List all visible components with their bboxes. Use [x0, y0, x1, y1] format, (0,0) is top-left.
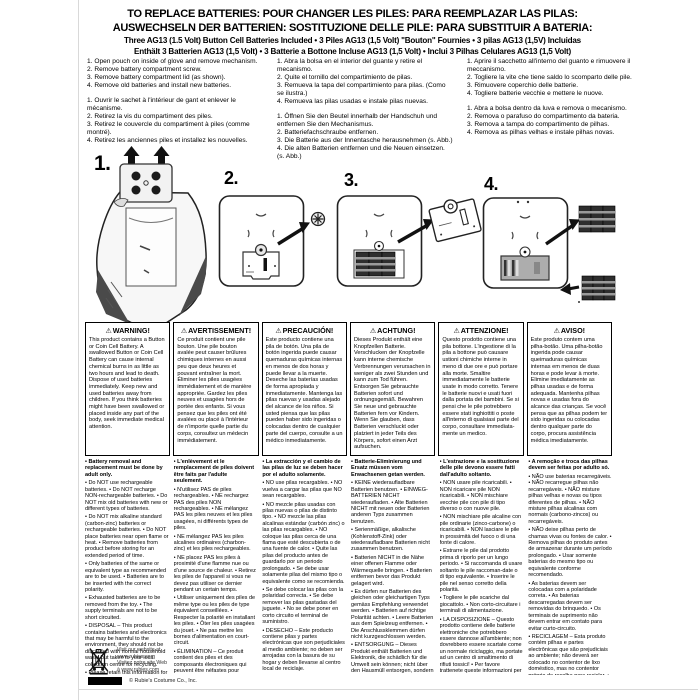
subtitle-line-1: Three AG13 (1.5 Volt) Button Cell Batter… [85, 36, 620, 47]
warning-title-text: ATTENZIONE! [461, 326, 509, 335]
warning-title: ⚠ATTENZIONE! [442, 326, 519, 335]
step-line: 1. Open pouch on inside of glove and rem… [87, 58, 263, 66]
warning-boxes: ⚠WARNING! This product contains a Button… [85, 322, 612, 456]
notes-french: • L'enlèvement et le remplacement de pil… [174, 459, 258, 675]
note-paragraph: • ÉLIMINATION – Ce produit contient des … [174, 649, 258, 675]
warning-triangle-icon: ⚠ [181, 328, 187, 335]
step-line: 4. Togliere batterie vecchie e mettere l… [467, 90, 643, 98]
note-paragraph: • Togliere le pile scariche dal giocatto… [440, 595, 524, 614]
figure-1-glove-illustration [84, 146, 219, 330]
warning-text: Dieses Produkt enthält eine Knopfzellen … [354, 337, 431, 451]
steps-spanish: 1. Abra la bolsa en el interior del guan… [277, 58, 453, 106]
note-paragraph: • NE mélangez PAS les piles alcalines or… [174, 534, 258, 553]
step-line: 4. Retirez les anciennes piles et instal… [87, 137, 263, 145]
steps-english: 1. Open pouch on inside of glove and rem… [87, 58, 263, 90]
title-line-2: AUSWECHSELN DER BATTERIEN: SOSTITUZIONE … [85, 22, 620, 36]
steps-column-2: 1. Abra la bolsa en el interior del guan… [277, 58, 453, 168]
figure-2-remove-screw-illustration [218, 192, 330, 294]
note-paragraph: • Es dürfen nur Batterien des gleichen o… [351, 589, 435, 640]
warning-triangle-icon: ⚠ [554, 328, 560, 335]
notes-english: • Battery removal and replacement must b… [85, 459, 169, 675]
note-paragraph: • Estrarre le pile dal prodotto prima di… [440, 548, 524, 593]
warning-title: ⚠AVISO! [531, 326, 608, 335]
note-paragraph: • KEINE wiederaufladbare Batterien benut… [351, 480, 435, 525]
step-line: 3. Remueva la tapa del compartimiento pa… [277, 82, 453, 98]
warning-text: Ce produit contient une pile bouton. Une… [177, 337, 254, 444]
warning-title-text: AVISO! [561, 326, 585, 335]
figure-3-remove-lid-illustration [336, 192, 482, 294]
step-line: 3. Rimuovere coperchio delle batterie. [467, 82, 643, 90]
step-line: 2. Quite el tornillo del compartimiento … [277, 74, 453, 82]
website-line: Visit our website at [117, 647, 167, 654]
step-line: 3. Retirez le couvercle du compartiment … [87, 121, 263, 137]
steps-column-3: 1. Aprire il sacchetto all'interno del g… [467, 58, 643, 168]
website-note: Visit our website atwww.rubies.comVisite… [117, 647, 167, 673]
warning-title-text: AVERTISSEMENT! [188, 326, 251, 335]
step-line: 2. Togliere la vite che tiene saldo lo s… [467, 74, 643, 82]
note-paragraph: • NO use pilas recargables. • NO vuelva … [262, 480, 346, 499]
note-paragraph: • Batterie-Eliminierung und Ersatz müsse… [351, 459, 435, 478]
note-paragraph: • RECICLAGEM – Esta produto contém pilha… [528, 634, 612, 675]
note-paragraph: • L'enlèvement et le remplacement de pil… [174, 459, 258, 485]
website-line: à www.rubies.com [117, 667, 167, 674]
warning-box: ⚠ACHTUNG! Dieses Produkt enthält eine Kn… [350, 322, 435, 456]
warning-triangle-icon: ⚠ [275, 328, 281, 335]
document-title: TO REPLACE BATTERIES: POUR CHANGER LES P… [85, 8, 620, 36]
note-paragraph: • DESECHO – Este producto contiene pilas… [262, 628, 346, 673]
note-paragraph: • NÃO use baterias recarregáveis. • NÃO … [528, 474, 612, 525]
figure-3-label: 3. [344, 170, 358, 191]
step-line: 3. Remove battery compartment lid (as sh… [87, 74, 263, 82]
note-paragraph: • NON usare pile ricaricabili. • NON ric… [440, 480, 524, 512]
warning-title-text: ACHTUNG! [377, 326, 415, 335]
page-left-edge [78, 0, 79, 700]
warning-title: ⚠ACHTUNG! [354, 326, 431, 335]
page-bottom-edge [78, 689, 698, 690]
step-line: 2. Remova o parafuso do compartimento da… [467, 113, 643, 121]
notes-italian: • L'estrazione e la sostituzione delle p… [440, 459, 524, 675]
warning-text: Este produto contem uma pilha-botão. Uma… [531, 337, 608, 444]
note-paragraph: • NÃO deixe pilhas perto de chamas vivas… [528, 527, 612, 578]
warning-triangle-icon: ⚠ [105, 328, 111, 335]
warning-box: ⚠AVERTISSEMENT! Ce produit contient une … [173, 322, 258, 456]
mechanism-box [114, 164, 172, 207]
step-line: 3. Die Batterie aus der Innentasche hera… [277, 137, 453, 145]
note-paragraph: • ENTSORGUNG – Dieses Produkt enthält Ba… [351, 642, 435, 675]
step-line: 4. Remove old batteries and install new … [87, 82, 263, 90]
warning-box: ⚠ATTENZIONE! Questo prodotto contiene un… [438, 322, 523, 456]
step-line: 2. Retirez la vis du compartiment des pi… [87, 113, 263, 121]
note-paragraph: • NO mezcle pilas usadas con pilas nueva… [262, 502, 346, 585]
warning-triangle-icon: ⚠ [370, 328, 376, 335]
note-paragraph: • Battery removal and replacement must b… [85, 459, 169, 478]
warning-title-text: PRECAUCIÓN! [283, 326, 334, 335]
step-line: 1. Öffnen Sie den Beutel innerhalb der H… [277, 113, 453, 129]
note-paragraph: • L'estrazione e la sostituzione delle p… [440, 459, 524, 478]
steps-german: 1. Öffnen Sie den Beutel innerhalb der H… [277, 113, 453, 161]
note-paragraph: • LA DISPOSIZIONE – Questo prodotto cont… [440, 617, 524, 675]
notes-portuguese: • A remoção e troca das pilhas devem ser… [528, 459, 612, 675]
warning-box: ⚠AVISO! Este produto contem uma pilha-bo… [527, 322, 612, 456]
subtitle-line-2: Enthält 3 Batterien AG13 (1,5 Volt) • 3 … [85, 47, 620, 58]
warning-title-text: WARNING! [113, 326, 150, 335]
steps-italian: 1. Aprire il sacchetto all'interno del g… [467, 58, 643, 98]
step-line: 2. Remove battery compartment screw. [87, 66, 263, 74]
steps-french: 1. Ouvrir le sachet à l'intérieur de gan… [87, 97, 263, 145]
website-line: Visitez notre site Web [117, 660, 167, 667]
note-paragraph: • Batterien NICHT in die Nähe einer offe… [351, 555, 435, 587]
step-line: 1. Abra la bolsa en el interior del guan… [277, 58, 453, 74]
arrow-up-icon [124, 146, 170, 165]
warning-text: Este producto contiene una pila de botón… [266, 337, 343, 444]
instruction-sheet: TO REPLACE BATTERIES: POUR CHANGER LES P… [0, 0, 700, 700]
note-paragraph: • N'utilisez PAS de piles rechargeables.… [174, 487, 258, 532]
note-paragraph: • Exhausted batteries are to be removed … [85, 595, 169, 621]
notes-german: • Batterie-Eliminierung und Ersatz müsse… [351, 459, 435, 675]
safety-notes: • Battery removal and replacement must b… [85, 459, 612, 675]
figure-2-label: 2. [224, 168, 238, 189]
note-paragraph: • Favor mantenga esta información para r… [262, 675, 346, 676]
footer-black-bar [88, 677, 122, 685]
warning-text: This product contains a Button or Coin C… [89, 337, 166, 431]
warning-title: ⚠AVERTISSEMENT! [177, 326, 254, 335]
step-line: 4. Remova as pilhas velhas e instale pil… [467, 129, 643, 137]
note-paragraph: • Se debe colocar las pilas con la polar… [262, 587, 346, 626]
note-paragraph: • Only batteries of the same or equivale… [85, 561, 169, 593]
step-line: 2. Batteriefachschraube entfernen. [277, 129, 453, 137]
warning-title: ⚠WARNING! [89, 326, 166, 335]
step-line: 4. Die alten Batterien entfernen und die… [277, 145, 453, 161]
step-line: 1. Abra a bolsa dentro da luva e remova … [467, 105, 643, 113]
battery-stack-removed [579, 206, 615, 232]
warning-box: ⚠WARNING! This product contains a Button… [85, 322, 170, 456]
note-paragraph: • La extracción y el cambio de las pilas… [262, 459, 346, 478]
step-line: 4. Remueva las pilas usadas e instale pi… [277, 98, 453, 106]
screw-icon [312, 213, 325, 226]
weee-crossed-bin-icon [88, 646, 110, 675]
step-line: 1. Ouvrir le sachet à l'intérieur de gan… [87, 97, 263, 113]
note-paragraph: • NON mischiare pile alcaline con pile o… [440, 514, 524, 546]
note-paragraph: • Utiliser uniquement des piles de même … [174, 595, 258, 646]
step-line: 1. Aprire il sacchetto all'interno del g… [467, 58, 643, 74]
compartment-lid [428, 194, 482, 242]
warning-box: ⚠PRECAUCIÓN! Este producto contiene una … [262, 322, 347, 456]
warning-text: Questo prodotto contiene una pila botton… [442, 337, 519, 438]
copyright-text: © Rubie's Costume Co., Inc. [129, 678, 197, 684]
notes-spanish: • La extracción y el cambio de las pilas… [262, 459, 346, 675]
note-paragraph: • A remoção e troca das pilhas devem ser… [528, 459, 612, 472]
note-paragraph: • Serienmäßige, alkalische (Kohlenstoff-… [351, 527, 435, 553]
battery-stack-new [578, 276, 615, 303]
warning-title: ⚠PRECAUCIÓN! [266, 326, 343, 335]
note-paragraph: • As baterias devem ser colocadas com a … [528, 581, 612, 632]
title-line-1: TO REPLACE BATTERIES: POUR CHANGER LES P… [85, 8, 620, 22]
note-paragraph: • NE placez PAS les piles à proximité d'… [174, 555, 258, 594]
note-paragraph: • Do NOT mix alkaline standard (carbon-z… [85, 514, 169, 559]
step-line: 3. Remova a tampa do compartimento de pi… [467, 121, 643, 129]
warning-triangle-icon: ⚠ [453, 328, 459, 335]
note-paragraph: • Do NOT use rechargeable batteries. • D… [85, 480, 169, 512]
steps-portuguese: 1. Abra a bolsa dentro da luva e remova … [467, 105, 643, 137]
document-subtitle: Three AG13 (1.5 Volt) Button Cell Batter… [85, 36, 620, 57]
figure-4-replace-batteries-illustration [482, 190, 617, 308]
